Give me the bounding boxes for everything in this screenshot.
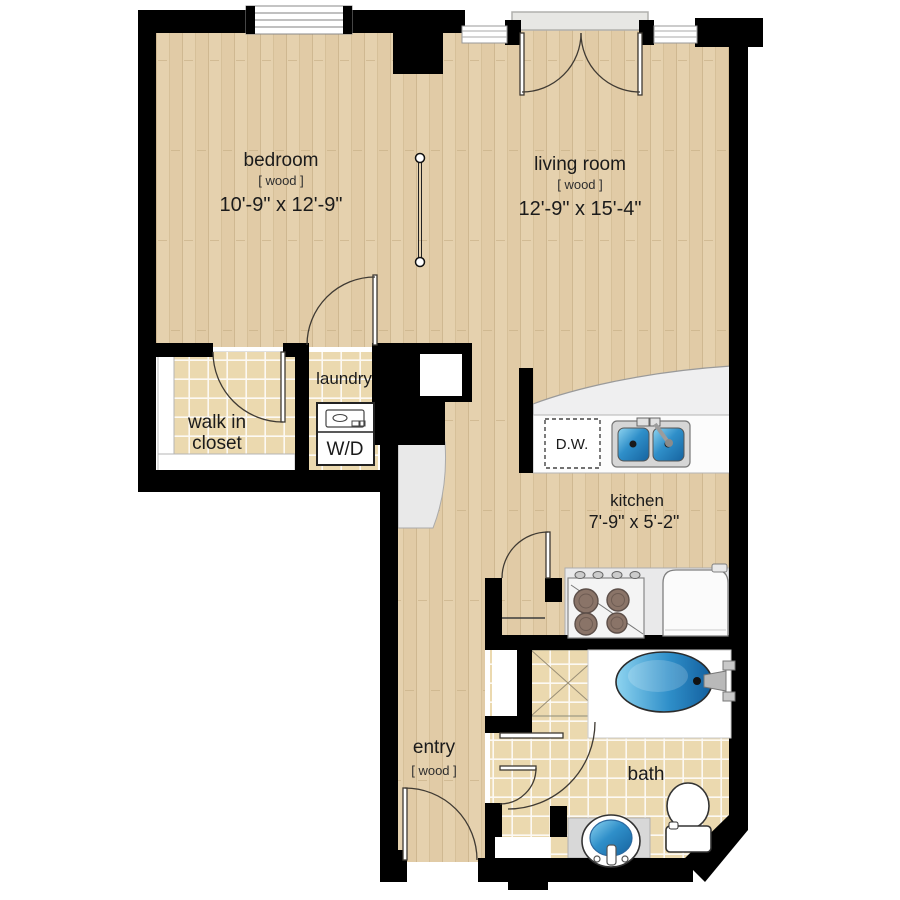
kitchen-sink xyxy=(612,418,690,467)
walk-in-closet-label-line1: walk in xyxy=(187,412,246,433)
bedroom-dimensions: 10'-9" x 12'-9" xyxy=(219,194,342,216)
living-room-dimensions: 12'-9" x 15'-4" xyxy=(518,198,641,220)
living-room-floor-note: [ wood ] xyxy=(557,177,603,192)
living-room-label: living room xyxy=(534,154,626,175)
walk-in-closet-label-line2: closet xyxy=(192,433,242,454)
bath-sink xyxy=(582,815,640,867)
floor-plan: bedroom [ wood ] 10'-9" x 12'-9" living … xyxy=(0,0,900,900)
balcony-threshold xyxy=(512,12,648,30)
bedroom-window xyxy=(246,6,352,34)
stove xyxy=(568,572,644,639)
bath-label: bath xyxy=(628,764,665,785)
refrigerator xyxy=(663,564,728,636)
bedroom-label: bedroom xyxy=(244,150,319,171)
toilet xyxy=(666,783,711,852)
bedroom-floor-note: [ wood ] xyxy=(258,173,304,188)
entry-label: entry xyxy=(413,737,456,758)
entry-floor-note: [ wood ] xyxy=(411,763,457,778)
kitchen-label: kitchen xyxy=(610,491,664,510)
dishwasher-label: D.W. xyxy=(556,436,589,453)
washer-dryer-label: W/D xyxy=(327,439,364,460)
kitchen-dimensions: 7'-9" x 5'-2" xyxy=(589,512,680,532)
bathtub xyxy=(588,650,735,738)
laundry-label: laundry xyxy=(316,369,372,388)
floor-plan-page: bedroom [ wood ] 10'-9" x 12'-9" living … xyxy=(0,0,900,900)
